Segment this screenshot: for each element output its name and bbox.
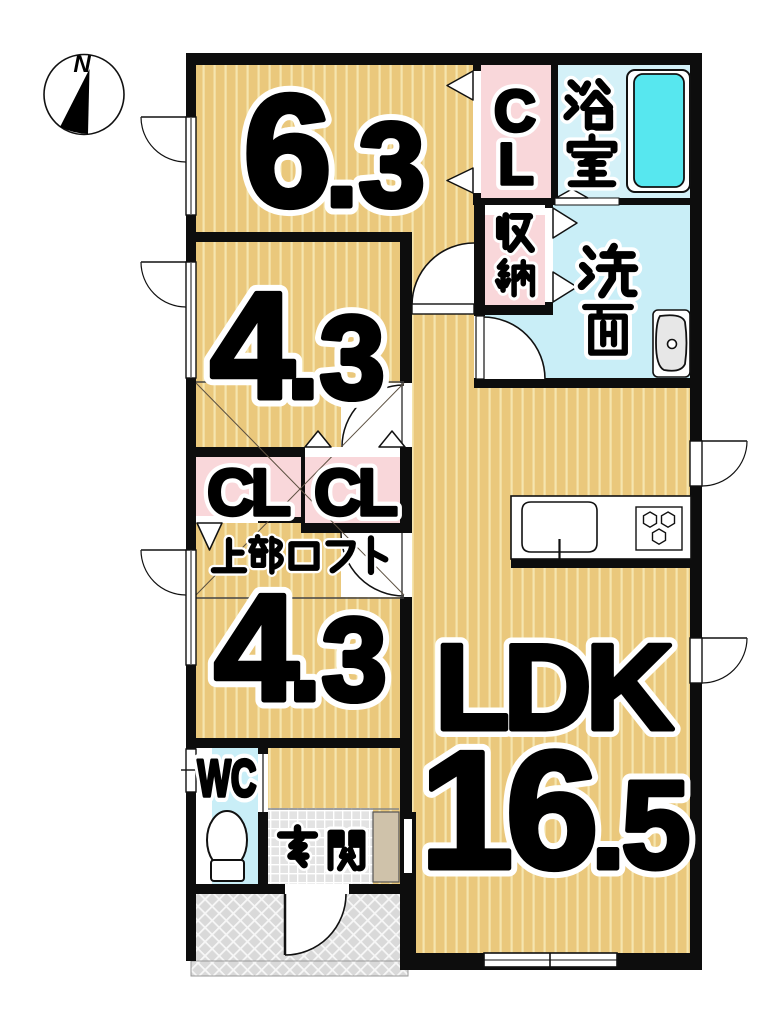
- svg-text:L: L: [498, 132, 533, 197]
- svg-text:CL: CL: [207, 455, 290, 529]
- svg-text:WC: WC: [198, 750, 257, 807]
- svg-text:CL: CL: [314, 455, 397, 529]
- svg-text:N: N: [73, 51, 91, 78]
